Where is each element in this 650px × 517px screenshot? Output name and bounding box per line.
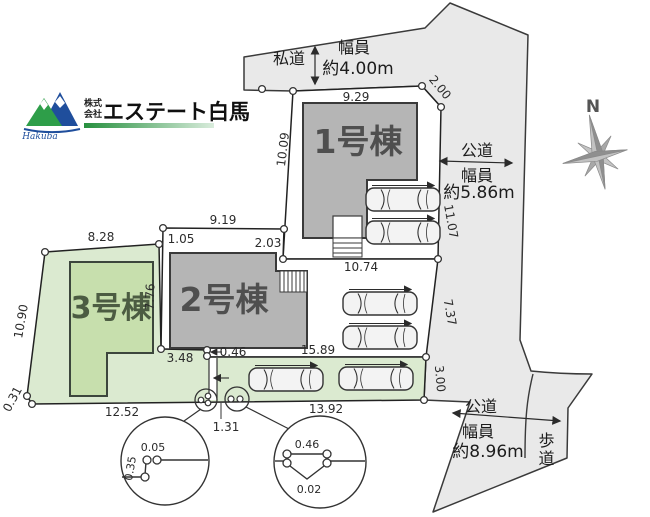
logo-company-type-bottom: 会社 — [84, 108, 102, 120]
dim-lot2-left-upper: 1.05 — [168, 232, 195, 246]
dim-lot3-top: 8.28 — [88, 230, 115, 244]
logo-company-name: エステート白馬 — [103, 100, 250, 124]
logo-script: Hakuba — [21, 132, 58, 142]
car-strip-a — [249, 366, 323, 392]
dim-lot3-bottom: 12.52 — [105, 405, 139, 419]
public-south-width-caption: 幅員 — [462, 422, 494, 441]
car-lot2-a — [343, 290, 417, 316]
private-road-width-value: 約4.00m — [322, 59, 393, 79]
dim-detail-right-top: 0.46 — [295, 438, 320, 451]
private-road-label: 私道 — [273, 49, 305, 68]
public-south-width-value: 約8.96m — [452, 442, 523, 462]
public-east-label: 公道 — [461, 141, 493, 160]
car-lot2-b — [343, 324, 417, 350]
dim-lot1-bottom: 10.74 — [344, 260, 378, 274]
dim-lot2-jog: 0.46 — [220, 345, 247, 359]
dim-lot2-bottom: 15.89 — [301, 343, 335, 357]
dim-detail-left-h: 0.05 — [141, 441, 166, 454]
logo-underline-bar — [84, 123, 214, 128]
building-2-label: 2号棟 — [180, 280, 270, 319]
callout-leader-right — [246, 407, 291, 430]
dim-detail-right-bottom: 0.02 — [297, 483, 322, 496]
dim-lot2-bottom-left: 3.48 — [167, 351, 194, 365]
dim-lot2-right-upper: 2.03 — [255, 236, 282, 250]
dim-strip-right: 3.00 — [432, 365, 448, 393]
dim-lot1-top: 9.29 — [343, 90, 370, 104]
building-1-porch — [333, 216, 362, 238]
compass-north-label: N — [586, 97, 600, 117]
dim-strip-bottom: 13.92 — [309, 402, 343, 416]
dim-lot2-top: 9.19 — [210, 213, 237, 227]
logo-company-type-top: 株式 — [84, 97, 102, 109]
building-2-stairs — [280, 271, 307, 292]
dim-lot3-corner: 0.31 — [0, 384, 25, 414]
dim-lot3-left: 10.90 — [11, 303, 31, 339]
building-1-steps — [333, 238, 362, 257]
dim-lot2-left: 7.76 — [143, 283, 158, 310]
private-road-width-caption: 幅員 — [338, 38, 370, 57]
dim-passage: 1.31 — [213, 420, 240, 434]
car-strip-b — [339, 365, 413, 391]
car-lot1-a — [366, 186, 440, 212]
site-plan-drawing: 1号棟 2号棟 3号棟 私道 幅員 約4.00m 公道 幅員 約5.86m 公道… — [0, 0, 650, 517]
building-3-label: 3号棟 — [71, 291, 153, 326]
callout-leader-left — [184, 409, 201, 421]
compass-rose — [554, 109, 634, 197]
logo-mountain-icon — [24, 92, 80, 132]
sidewalk-label: 歩道 — [536, 432, 555, 468]
company-logo: Hakuba 株式 会社 エステート白馬 — [21, 92, 250, 142]
public-south-label: 公道 — [465, 397, 497, 416]
site-plan-page: 1号棟 2号棟 3号棟 私道 幅員 約4.00m 公道 幅員 約5.86m 公道… — [0, 0, 650, 517]
car-lot1-b — [366, 219, 440, 245]
building-1-label: 1号棟 — [314, 122, 404, 161]
public-east-width-value: 約5.86m — [443, 183, 514, 203]
